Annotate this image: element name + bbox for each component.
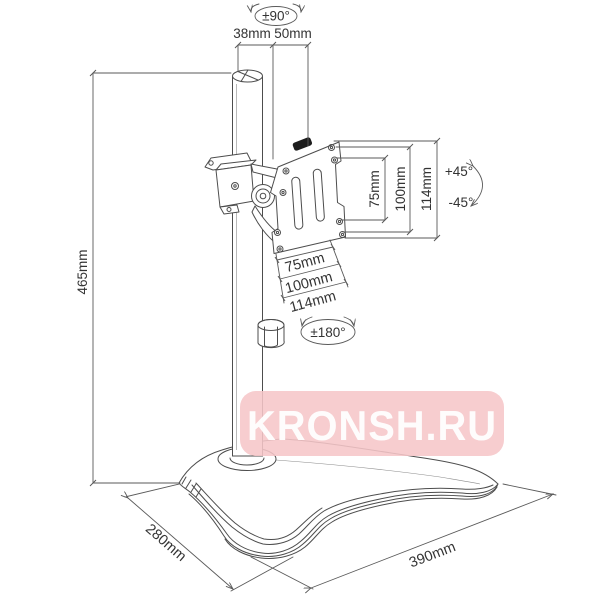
tilt-knob (292, 137, 313, 152)
watermark: KRONSH.RU (240, 391, 504, 456)
technical-drawing-canvas: ±90° 38mm 50mm 465mm 75mm 100mm 114mm +4… (0, 0, 600, 600)
dim-tilt: +45° -45° (445, 164, 483, 210)
label-vesa-v-75: 75mm (367, 170, 382, 208)
label-vesa-v-100: 100mm (393, 166, 408, 211)
label-pole-diameter: 38mm (233, 26, 271, 41)
label-tilt-up: +45° (445, 164, 473, 179)
watermark-text: KRONSH.RU (247, 402, 497, 449)
label-swivel-top: ±90° (262, 9, 290, 24)
cable-clip (258, 320, 284, 348)
label-pan: ±180° (310, 325, 345, 340)
label-base-width: 390mm (407, 539, 458, 571)
dim-height: 465mm (75, 70, 231, 486)
vesa-plate (271, 137, 346, 254)
label-base-depth: 280mm (142, 521, 189, 565)
dim-vesa-horizontal: 75mm 100mm 114mm (275, 240, 348, 316)
label-tilt-down: -45° (449, 195, 474, 210)
label-vesa-v-114: 114mm (419, 167, 434, 211)
label-pole-height: 465mm (75, 249, 90, 294)
dim-pan: ±180° (301, 317, 355, 345)
clamp-block (216, 165, 254, 207)
label-pole-offset: 50mm (274, 26, 312, 41)
dim-vesa-vertical: 75mm 100mm 114mm (334, 138, 440, 241)
monitor-stand-diagram: ±90° 38mm 50mm 465mm 75mm 100mm 114mm +4… (0, 0, 600, 600)
